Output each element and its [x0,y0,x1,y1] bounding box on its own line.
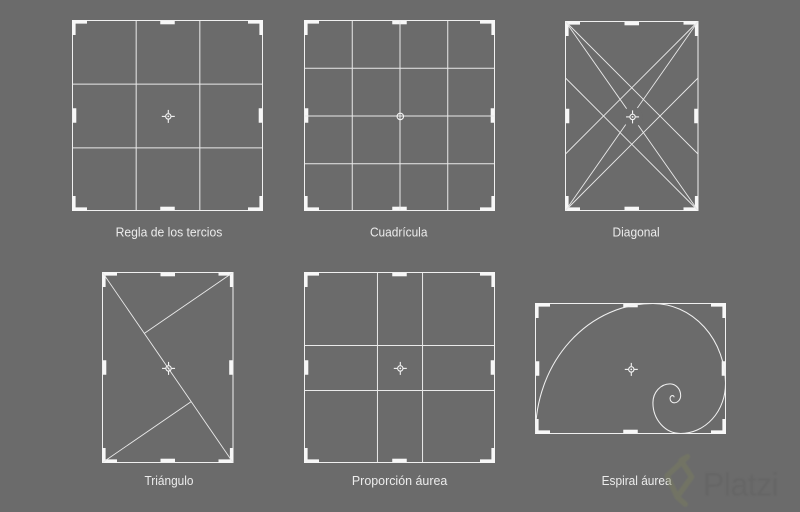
svg-text:Cuadrícula: Cuadrícula [370,224,428,239]
svg-text:Regla de los tercios: Regla de los tercios [116,224,223,239]
svg-text:Proporción áurea: Proporción áurea [352,473,448,488]
svg-text:Triángulo: Triángulo [145,473,194,488]
svg-text:Espiral áurea: Espiral áurea [602,473,672,488]
svg-text:Platzi: Platzi [703,467,778,503]
svg-text:Diagonal: Diagonal [613,224,660,239]
